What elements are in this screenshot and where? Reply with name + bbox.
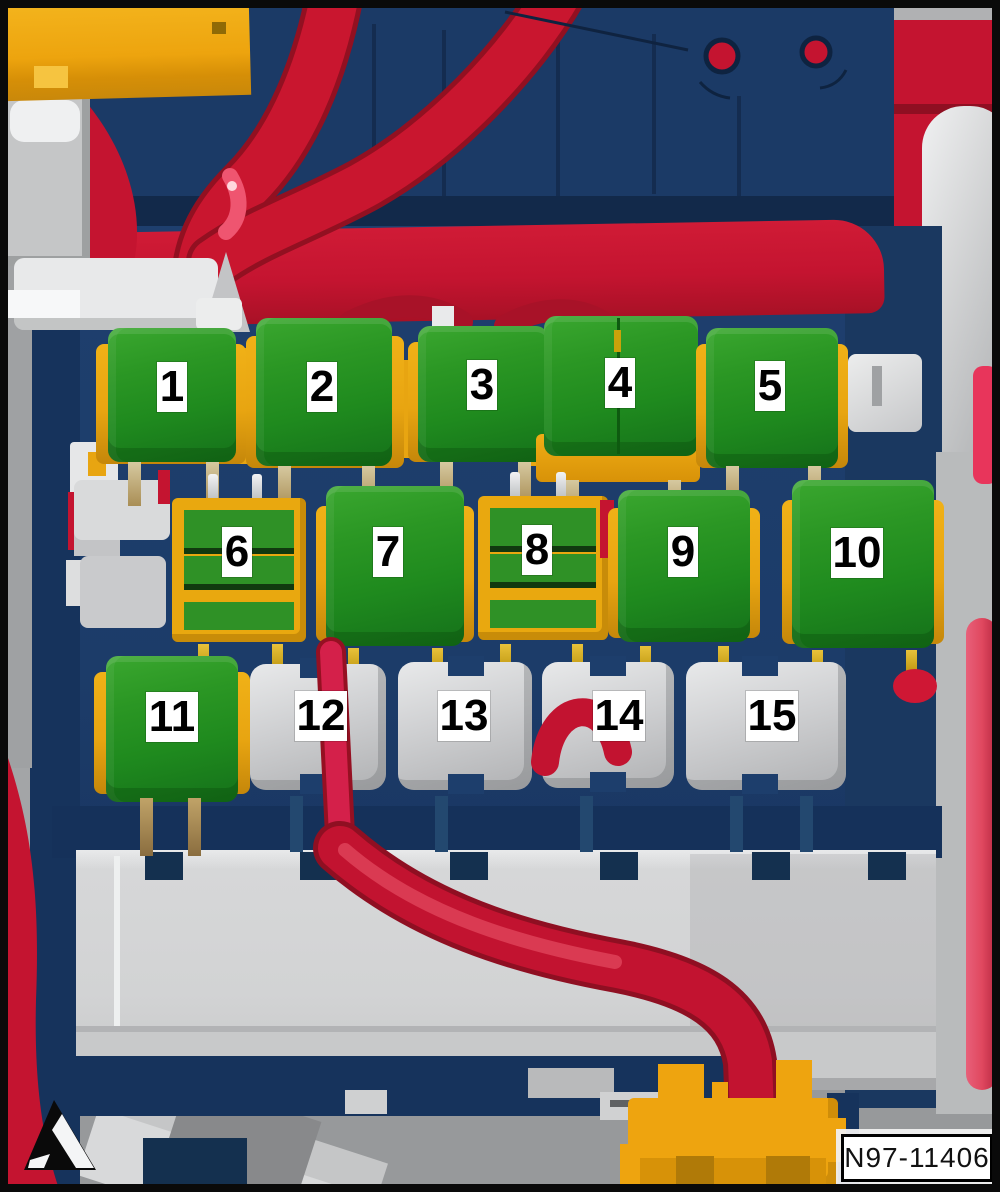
- position-label-11: 11: [146, 692, 198, 742]
- relay-box-diagram: N97-11406 1 2 3 4 5 6 7 8 9 10 11 12 13 …: [0, 0, 1000, 1192]
- position-marker-icon: [14, 1092, 124, 1192]
- position-label-13: 13: [438, 691, 490, 741]
- frame-border: [0, 1184, 1000, 1192]
- position-label-5: 5: [755, 361, 785, 411]
- position-label-10: 10: [831, 528, 883, 578]
- bottom-connector-notch: [676, 1156, 714, 1184]
- position-label-6: 6: [222, 527, 252, 577]
- id-plate: N97-11406: [841, 1134, 993, 1182]
- frame-border: [992, 0, 1000, 1192]
- position-label-8: 8: [522, 525, 552, 575]
- position-label-1: 1: [157, 362, 187, 412]
- position-label-12: 12: [295, 691, 347, 741]
- bottom-cables-graphic: [0, 0, 1000, 1192]
- position-label-7: 7: [373, 527, 403, 577]
- bottom-connector-notch: [766, 1156, 810, 1184]
- position-label-4: 4: [605, 358, 635, 408]
- position-label-3: 3: [467, 360, 497, 410]
- id-plate-text: N97-11406: [844, 1142, 989, 1173]
- frame-border: [0, 0, 1000, 8]
- position-label-2: 2: [307, 362, 337, 412]
- frame-border: [0, 0, 8, 1192]
- position-label-14: 14: [593, 691, 645, 741]
- position-label-9: 9: [668, 527, 698, 577]
- red-cable-end: [893, 669, 937, 703]
- position-label-15: 15: [746, 691, 798, 741]
